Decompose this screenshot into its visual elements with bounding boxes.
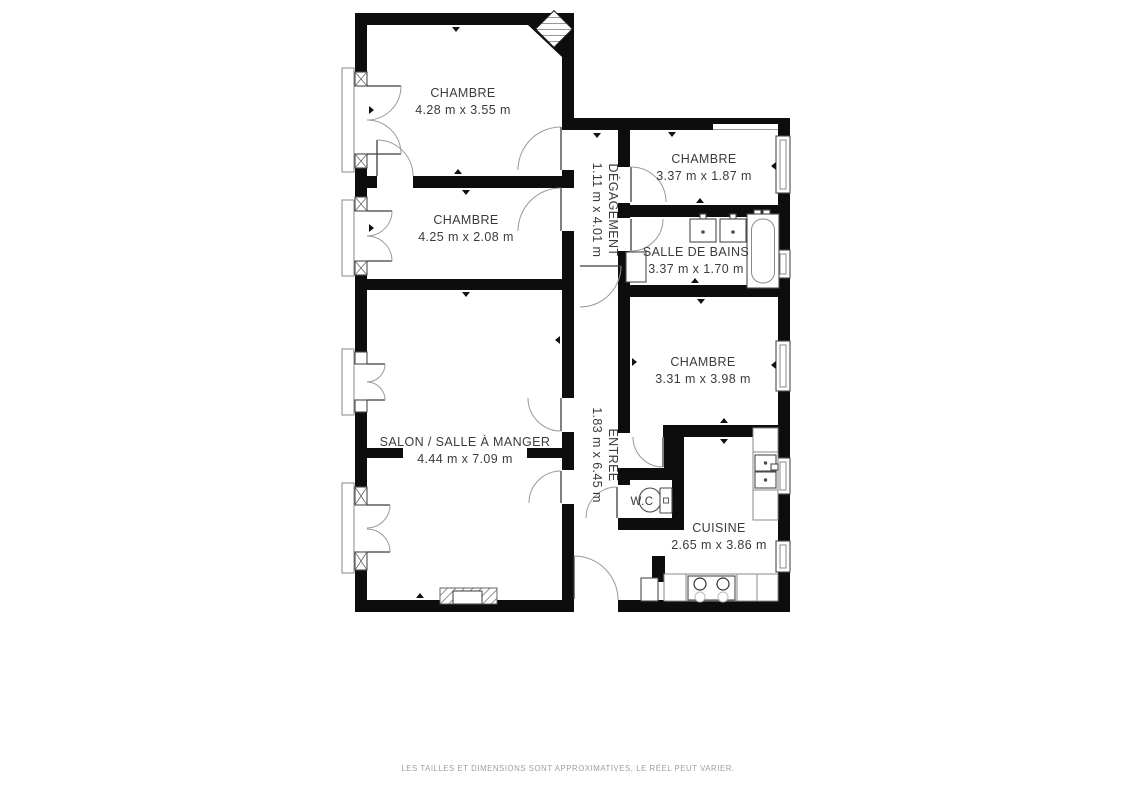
label-chambre-1-dims: 4.28 m x 3.55 m	[415, 103, 511, 117]
stove-icon	[688, 576, 735, 602]
label-chambre-1-name: CHAMBRE	[430, 86, 495, 100]
label-salon-name: SALON / SALLE À MANGER	[380, 434, 551, 449]
bathtub-icon	[747, 210, 779, 288]
window-chambre4-icon	[776, 341, 790, 391]
label-entree-dims: 1.83 m x 6.45 m	[590, 407, 604, 503]
label-chambre-3-name: CHAMBRE	[671, 152, 736, 166]
label-wc-name: W.C	[631, 496, 654, 508]
window-salon-upper-icon	[342, 349, 385, 415]
fireplace-icon	[440, 588, 497, 604]
label-chambre-4-dims: 3.31 m x 3.98 m	[655, 372, 751, 386]
kitchen-counter-right-icon	[753, 428, 778, 520]
label-degagement-name: DÉGAGEMENT	[606, 164, 621, 257]
label-entree-name: ENTRÉE	[606, 428, 621, 481]
door-chambre1-chambre2-icon	[377, 140, 413, 176]
label-cuisine-dims: 2.65 m x 3.86 m	[671, 538, 767, 552]
bathroom-sinks-icon	[690, 214, 746, 242]
door-chambre2-icon	[518, 188, 561, 231]
floorplan-canvas: CHAMBRE 4.28 m x 3.55 m CHAMBRE 4.25 m x…	[0, 0, 1130, 785]
window-chambre3-icon	[776, 136, 790, 193]
label-salon-dims: 4.44 m x 7.09 m	[417, 452, 513, 466]
door-salon-lower-icon	[529, 471, 561, 503]
window-chambre1-icon	[342, 68, 401, 172]
door-chambre4-icon	[633, 437, 663, 467]
door-front-entrance-icon	[574, 556, 618, 600]
label-chambre-2-dims: 4.25 m x 2.08 m	[418, 230, 514, 244]
floorplan-page: CHAMBRE 4.28 m x 3.55 m CHAMBRE 4.25 m x…	[0, 0, 1130, 785]
footer-disclaimer: LES TAILLES ET DIMENSIONS SONT APPROXIMA…	[401, 764, 734, 773]
window-chambre2-icon	[342, 197, 392, 276]
label-cuisine-name: CUISINE	[692, 521, 746, 535]
kitchen-cabinet-left-icon	[641, 578, 658, 601]
door-salon-upper-icon	[528, 398, 561, 431]
label-chambre-4-name: CHAMBRE	[670, 355, 735, 369]
label-chambre-2-name: CHAMBRE	[433, 213, 498, 227]
label-degagement-dims: 1.11 m x 4.01 m	[590, 163, 604, 258]
label-salle-de-bains-dims: 3.37 m x 1.70 m	[648, 262, 744, 276]
door-degagement-entree-icon	[580, 266, 621, 307]
window-cuisine-lower-icon	[776, 541, 790, 572]
label-chambre-3-dims: 3.37 m x 1.87 m	[656, 169, 752, 183]
label-salle-de-bains-name: SALLE DE BAINS	[643, 245, 749, 259]
door-chambre1-icon	[518, 127, 561, 170]
window-salon-lower-icon	[342, 483, 390, 573]
